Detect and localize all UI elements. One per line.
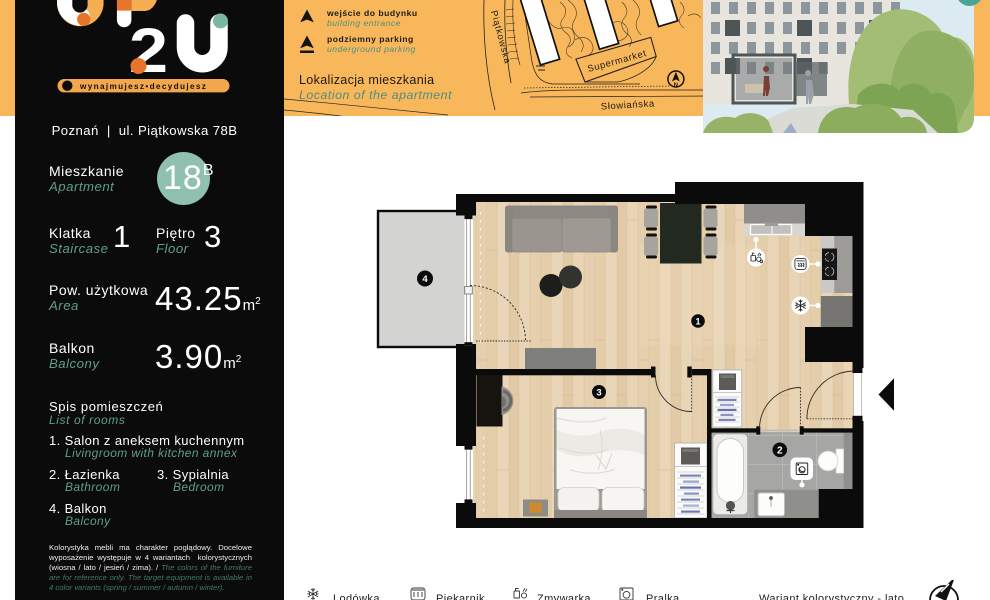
svg-text:underground parking: underground parking xyxy=(327,44,416,54)
svg-text:N: N xyxy=(674,82,678,88)
svg-text:3: 3 xyxy=(596,388,601,399)
svg-text:Piątkowska: Piątkowska xyxy=(489,9,513,65)
svg-text:Piekarnik: Piekarnik xyxy=(436,593,485,600)
svg-text:Zmywarka: Zmywarka xyxy=(537,593,591,600)
svg-text:wynajmujesz•decydujesz: wynajmujesz•decydujesz xyxy=(79,82,207,91)
svg-text:podziemny parking: podziemny parking xyxy=(327,34,414,44)
svg-text:building entrance: building entrance xyxy=(327,18,401,28)
svg-text:Słowiańska: Słowiańska xyxy=(601,98,656,112)
svg-text:2: 2 xyxy=(129,15,168,86)
svg-text:wejście do budynku: wejście do budynku xyxy=(326,8,418,18)
svg-text:Lokalizacja mieszkania: Lokalizacja mieszkania xyxy=(299,73,434,87)
svg-text:1: 1 xyxy=(695,316,700,326)
svg-text:Pralka: Pralka xyxy=(646,593,680,600)
svg-text:2: 2 xyxy=(777,445,783,456)
svg-text:Location of the apartment: Location of the apartment xyxy=(299,88,452,102)
svg-text:4: 4 xyxy=(422,274,428,285)
svg-text:Wariant kolorystyczny - lato: Wariant kolorystyczny - lato xyxy=(759,593,904,600)
svg-text:Lodówka: Lodówka xyxy=(333,593,380,600)
